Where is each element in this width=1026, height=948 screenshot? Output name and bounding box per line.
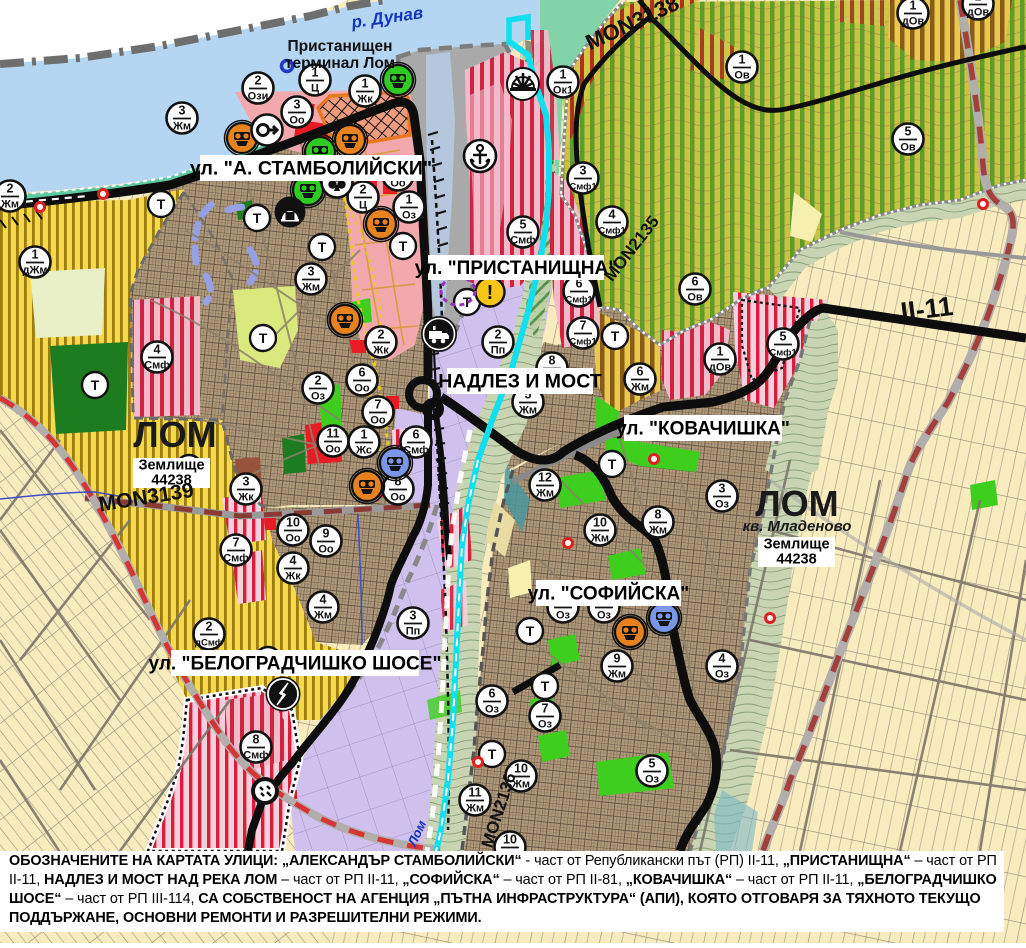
svg-text:Жм: Жм bbox=[607, 669, 626, 681]
svg-text:Оз: Оз bbox=[485, 704, 500, 716]
svg-text:Жк: Жк bbox=[372, 345, 389, 357]
svg-text:2: 2 bbox=[255, 74, 262, 88]
svg-text:2: 2 bbox=[7, 182, 14, 196]
svg-text:6: 6 bbox=[359, 366, 366, 380]
svg-text:1: 1 bbox=[717, 345, 724, 359]
svg-text:Т: Т bbox=[253, 210, 262, 226]
svg-text:терминал Лом: терминал Лом bbox=[285, 55, 395, 72]
svg-text:Т: Т bbox=[259, 330, 268, 346]
svg-text:5: 5 bbox=[780, 330, 787, 344]
svg-text:2: 2 bbox=[360, 183, 367, 197]
svg-text:ул. "СОФИЙСКА": ул. "СОФИЙСКА" bbox=[528, 583, 690, 605]
svg-text:Землище: Землище bbox=[138, 457, 204, 473]
svg-text:11: 11 bbox=[468, 786, 481, 800]
svg-text:3: 3 bbox=[719, 482, 726, 496]
svg-text:Оз: Оз bbox=[645, 774, 660, 786]
svg-text:2: 2 bbox=[495, 328, 502, 342]
svg-text:4: 4 bbox=[320, 593, 327, 607]
svg-text:Смф: Смф bbox=[223, 553, 249, 565]
svg-text:9: 9 bbox=[323, 527, 330, 541]
svg-text:НАДЛЕЗ И МОСТ: НАДЛЕЗ И МОСТ bbox=[438, 371, 602, 393]
svg-text:Жм: Жм bbox=[172, 121, 191, 133]
svg-text:Смф: Смф bbox=[510, 235, 536, 247]
svg-text:1: 1 bbox=[739, 53, 746, 67]
svg-text:5: 5 bbox=[905, 125, 912, 139]
svg-text:Ози: Ози bbox=[248, 91, 269, 103]
svg-text:Оз: Оз bbox=[556, 610, 571, 622]
svg-text:Оо: Оо bbox=[285, 533, 301, 545]
svg-text:7: 7 bbox=[233, 536, 240, 550]
svg-text:1: 1 bbox=[910, 0, 917, 13]
svg-text:8: 8 bbox=[253, 733, 260, 747]
svg-text:5: 5 bbox=[520, 218, 527, 232]
svg-text:1: 1 bbox=[32, 248, 39, 262]
svg-text:Оо: Оо bbox=[318, 544, 334, 556]
svg-text:Т: Т bbox=[526, 623, 535, 639]
svg-text:Смф1: Смф1 bbox=[598, 226, 626, 237]
svg-text:8: 8 bbox=[549, 354, 556, 368]
svg-text:ул. "ПРИСТАНИЩНА": ул. "ПРИСТАНИЩНА" bbox=[415, 258, 618, 279]
svg-text:Смф1: Смф1 bbox=[769, 348, 797, 359]
svg-text:7: 7 bbox=[580, 319, 587, 333]
svg-text:Т: Т bbox=[91, 377, 100, 393]
svg-text:Оо: Оо bbox=[390, 492, 406, 504]
svg-text:Ц: Ц bbox=[359, 200, 367, 212]
svg-text:Жм: Жм bbox=[313, 610, 332, 622]
svg-text:2: 2 bbox=[378, 328, 385, 342]
svg-text:3: 3 bbox=[243, 475, 250, 489]
svg-text:4: 4 bbox=[154, 343, 161, 357]
svg-text:3: 3 bbox=[308, 265, 315, 279]
svg-text:Оо: Оо bbox=[289, 115, 305, 127]
svg-text:дСмф: дСмф bbox=[195, 638, 223, 649]
svg-text:10: 10 bbox=[286, 516, 300, 530]
svg-text:Жм: Жм bbox=[648, 525, 667, 537]
svg-text:1: 1 bbox=[362, 77, 369, 91]
svg-text:10: 10 bbox=[593, 516, 607, 530]
svg-text:Пристанищен: Пристанищен bbox=[288, 38, 393, 55]
svg-text:дОв: дОв bbox=[709, 362, 732, 374]
svg-text:Ок1: Ок1 bbox=[553, 85, 573, 97]
svg-text:Жк: Жк bbox=[284, 571, 301, 583]
svg-text:6: 6 bbox=[692, 275, 699, 289]
svg-text:6: 6 bbox=[489, 687, 496, 701]
svg-text:Оз: Оз bbox=[402, 210, 417, 222]
svg-text:Жк: Жк bbox=[237, 492, 254, 504]
svg-text:1: 1 bbox=[975, 0, 982, 4]
svg-text:6: 6 bbox=[413, 428, 420, 442]
svg-text:ул. "А. СТАМБОЛИЙСКИ": ул. "А. СТАМБОЛИЙСКИ" bbox=[190, 156, 432, 180]
svg-text:Ов: Ов bbox=[687, 292, 703, 304]
svg-text:Т: Т bbox=[399, 238, 408, 254]
svg-text:44238: 44238 bbox=[776, 551, 816, 567]
svg-text:Жм: Жм bbox=[590, 533, 609, 545]
svg-text:Смф1: Смф1 bbox=[569, 182, 597, 193]
svg-text:Смф: Смф bbox=[243, 750, 269, 762]
svg-text:1: 1 bbox=[361, 428, 368, 442]
svg-text:2: 2 bbox=[206, 620, 213, 634]
svg-text:кв. Младеново: кв. Младеново bbox=[743, 518, 852, 535]
svg-text:Жм: Жм bbox=[301, 282, 320, 294]
svg-text:Оо: Оо bbox=[325, 444, 341, 456]
svg-text:Оо: Оо bbox=[370, 415, 386, 427]
svg-text:II-11: II-11 bbox=[899, 291, 955, 327]
svg-text:Оз: Оз bbox=[715, 669, 730, 681]
svg-text:дОв: дОв bbox=[967, 7, 990, 19]
svg-text:Землище: Землище bbox=[763, 536, 829, 552]
svg-text:4: 4 bbox=[719, 652, 726, 666]
svg-text:Пп: Пп bbox=[406, 626, 421, 638]
svg-text:Оз: Оз bbox=[597, 610, 612, 622]
svg-text:Т: Т bbox=[157, 196, 166, 212]
svg-text:4: 4 bbox=[290, 554, 297, 568]
svg-text:Оз: Оз bbox=[715, 499, 730, 511]
svg-text:1: 1 bbox=[560, 68, 567, 82]
svg-text:6: 6 bbox=[637, 365, 644, 379]
svg-text:Жс: Жс bbox=[355, 445, 372, 457]
svg-text:Смф1: Смф1 bbox=[565, 295, 593, 306]
svg-text:Т: Т bbox=[488, 746, 497, 762]
svg-text:5: 5 bbox=[649, 757, 656, 771]
svg-text:Жм: Жм bbox=[535, 488, 554, 500]
svg-text:Жк: Жк bbox=[356, 94, 373, 106]
svg-text:9: 9 bbox=[614, 652, 621, 666]
svg-text:Пп: Пп bbox=[491, 345, 506, 357]
svg-text:Т: Т bbox=[541, 678, 550, 694]
svg-text:Т: Т bbox=[608, 456, 617, 472]
svg-text:10: 10 bbox=[503, 833, 517, 847]
svg-text:Ов: Ов bbox=[900, 142, 916, 154]
svg-text:ул. "КОВАЧИШКА": ул. "КОВАЧИШКА" bbox=[616, 419, 790, 440]
svg-text:Смф: Смф bbox=[144, 360, 170, 372]
svg-text:10: 10 bbox=[514, 762, 528, 776]
svg-text:7: 7 bbox=[375, 398, 382, 412]
svg-text:Оз: Оз bbox=[311, 391, 326, 403]
svg-text:!: ! bbox=[487, 282, 494, 304]
svg-text:1: 1 bbox=[406, 193, 413, 207]
svg-text:ул. "БЕЛОГРАДЧИШКО ШОСЕ": ул. "БЕЛОГРАДЧИШКО ШОСЕ" bbox=[149, 654, 442, 675]
svg-text:7: 7 bbox=[542, 702, 549, 716]
svg-text:Т: Т bbox=[611, 328, 620, 344]
svg-text:2: 2 bbox=[315, 374, 322, 388]
svg-text:11: 11 bbox=[326, 427, 339, 441]
svg-text:3: 3 bbox=[179, 104, 186, 118]
svg-text:Оо: Оо bbox=[354, 383, 370, 395]
svg-text:Жм: Жм bbox=[0, 199, 19, 211]
svg-text:3: 3 bbox=[294, 98, 301, 112]
svg-text:Жм: Жм bbox=[630, 382, 649, 394]
svg-text:8: 8 bbox=[655, 508, 662, 522]
svg-text:Оз: Оз bbox=[538, 719, 553, 731]
svg-text:3: 3 bbox=[580, 164, 587, 178]
svg-text:4: 4 bbox=[609, 208, 616, 222]
svg-text:12: 12 bbox=[538, 471, 552, 485]
svg-text:дЖм: дЖм bbox=[22, 265, 47, 277]
svg-text:Жм: Жм bbox=[465, 803, 484, 815]
svg-text:ЛОМ: ЛОМ bbox=[133, 414, 216, 455]
svg-text:Смф1: Смф1 bbox=[569, 337, 597, 348]
svg-text:3: 3 bbox=[410, 609, 417, 623]
svg-text:дОв: дОв bbox=[902, 16, 925, 28]
svg-text:Ц: Ц bbox=[311, 83, 319, 95]
svg-text:Т: Т bbox=[318, 239, 327, 255]
svg-text:Ов: Ов bbox=[734, 70, 750, 82]
svg-text:Жм: Жм bbox=[518, 405, 537, 417]
